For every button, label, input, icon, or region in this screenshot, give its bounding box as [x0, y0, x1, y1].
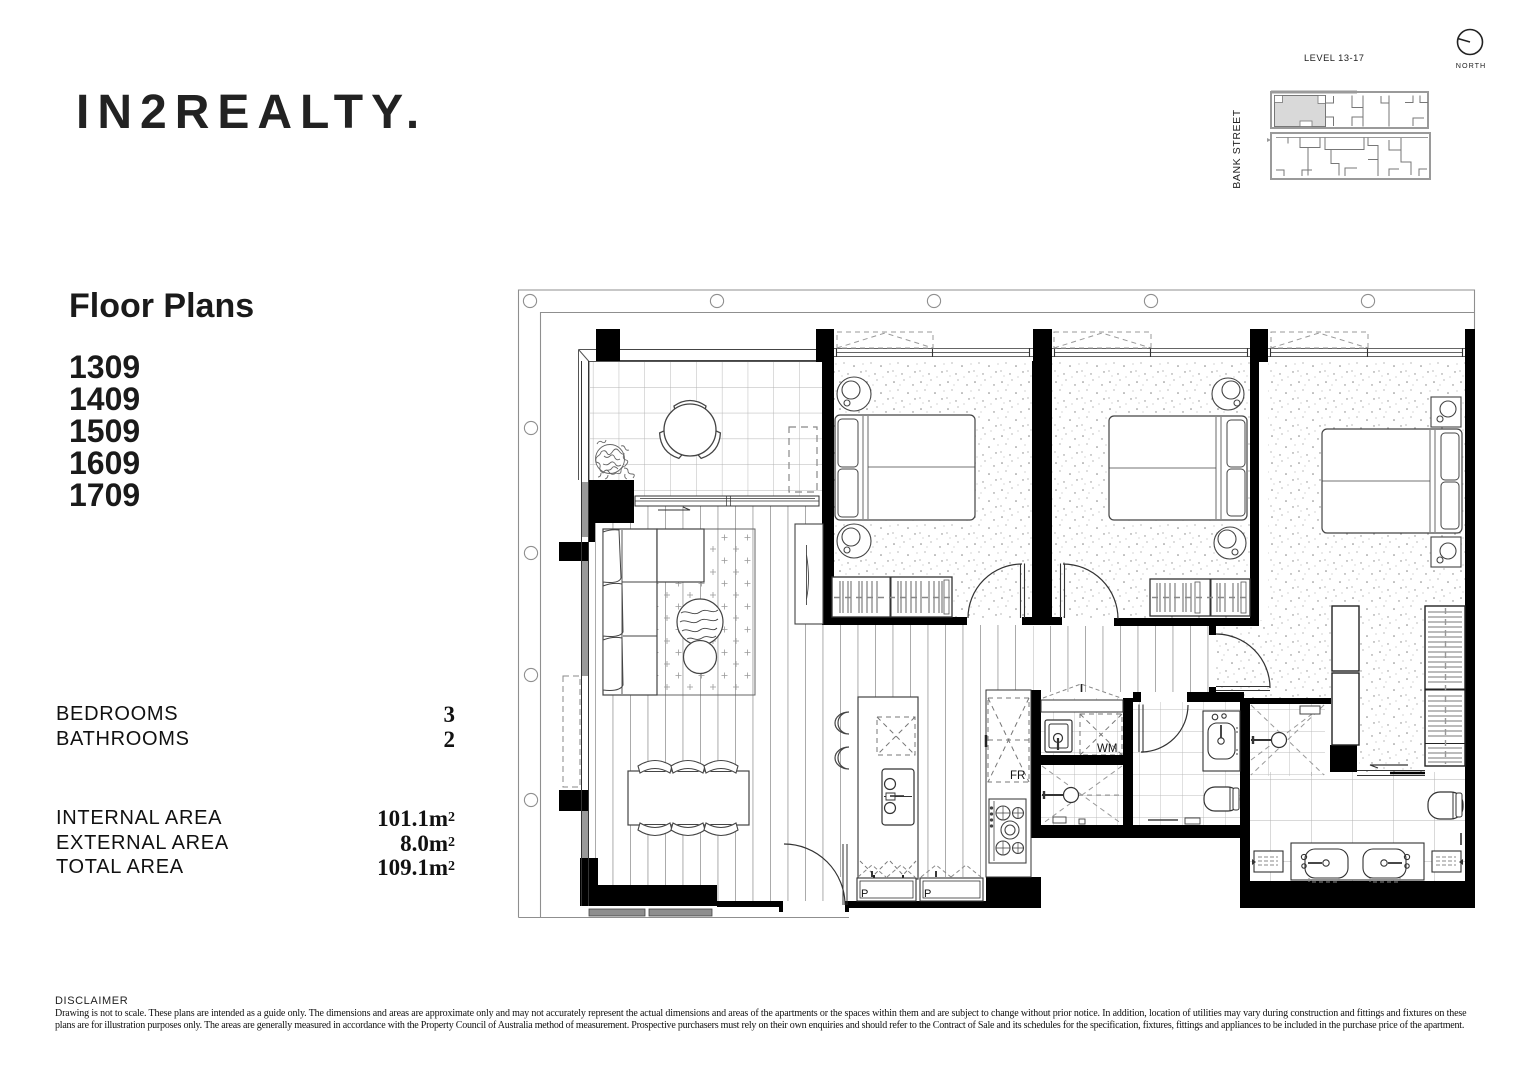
- svg-text:P: P: [861, 888, 868, 900]
- svg-text:P: P: [924, 888, 931, 900]
- svg-text:FR: FR: [1010, 770, 1025, 782]
- svg-text:WM: WM: [1097, 743, 1117, 755]
